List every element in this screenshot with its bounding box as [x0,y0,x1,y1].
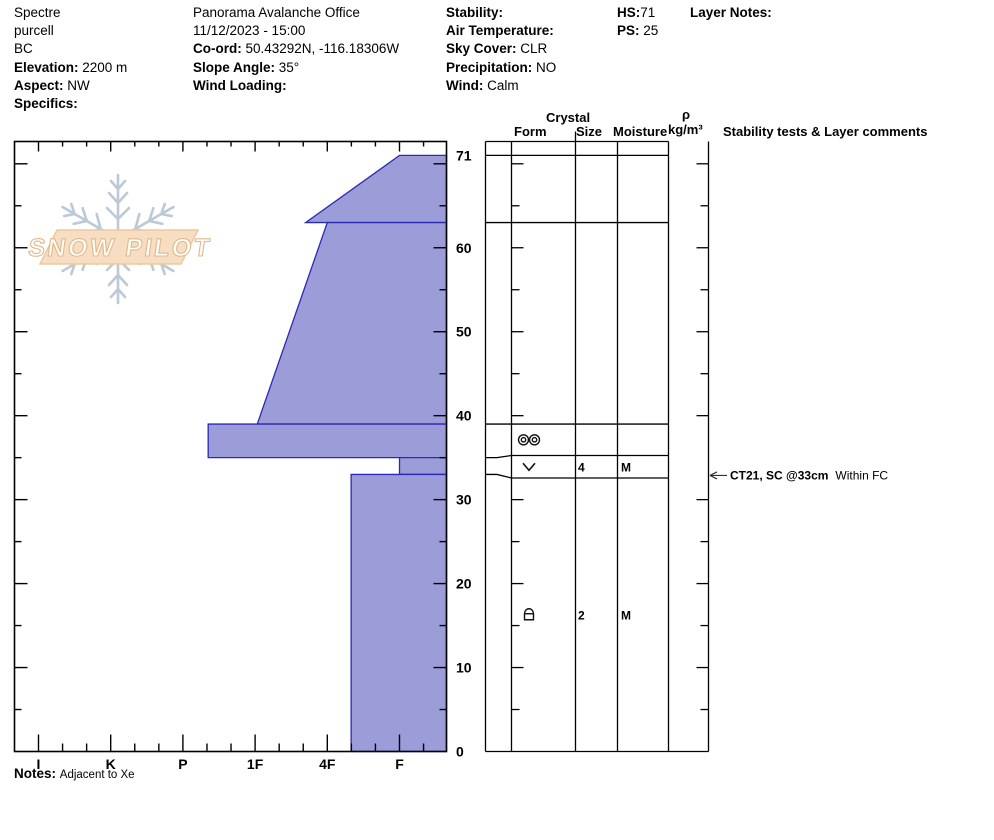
layer-table-content: 4M2M [519,435,632,622]
pit-notes: Notes: Adjacent to Xe [14,766,135,781]
depth-tick-label: 30 [456,492,472,508]
depth-tick-label: 60 [456,240,472,256]
logo-text: SNOW PILOT [27,234,214,262]
snow-layer-63-71cm [306,155,447,222]
snow-layer-39-63cm [257,223,446,424]
hardness-tick-label: P [178,756,187,772]
grain-form-dome-square-icon [525,609,534,620]
grain-size-value: 4 [578,460,585,474]
depth-tick-label: 40 [456,408,472,424]
row-leader-line [486,456,512,458]
notes-label: Notes: [14,766,56,781]
grain-size-value: 2 [578,608,585,622]
depth-tick-label: 20 [456,576,472,592]
depth-tick-label: 71 [456,147,472,163]
row-leader-line [486,474,512,478]
annotation-text: CT21, SC @33cmWithin FC [730,469,888,483]
snow-layer-0-33cm [351,474,446,751]
depth-tick-label: 10 [456,660,472,676]
snow-layer-33-35cm [400,458,447,475]
notes-text: Adjacent to Xe [60,769,135,781]
grain-form-chevron-down-icon [523,463,535,470]
chart-generated-content: IKP1F4FF7160504030201004M2MCT21, SC @33c… [15,132,889,773]
stability-test-annotation: CT21, SC @33cmWithin FC [710,469,888,483]
depth-tick-label: 0 [456,744,464,760]
snowpilot-profile-report: SpectrepurcellBCElevation: 2200 mAspect:… [0,0,994,840]
snowpilot-logo: SNOW PILOT [27,175,214,303]
hardness-tick-label: 1F [247,756,264,772]
snow-layer-35-39cm [208,424,446,458]
hardness-tick-label: F [395,756,404,772]
depth-tick-label: 50 [456,324,472,340]
moisture-value: M [621,460,631,474]
profile-chart: SNOW PILOT IKP1F4FF7160504030201004M2MCT… [0,0,994,840]
hardness-tick-label: 4F [319,756,336,772]
snow-layers [208,155,446,751]
moisture-value: M [621,608,631,622]
grain-form-two-circles-icon [519,435,540,445]
